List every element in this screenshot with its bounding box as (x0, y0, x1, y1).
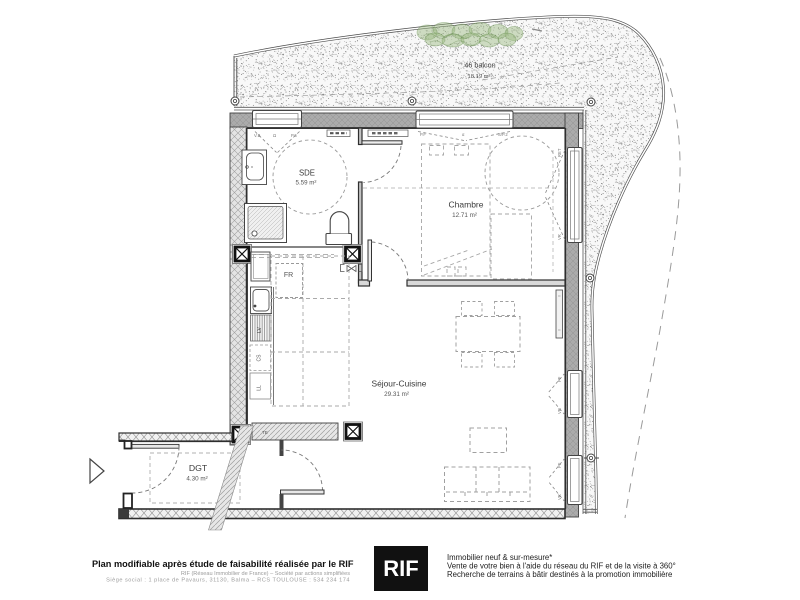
svg-text:46 balcon: 46 balcon (464, 61, 495, 70)
svg-text:4.30 m²: 4.30 m² (186, 476, 207, 483)
svg-text:Séjour-Cuisine: Séjour-Cuisine (372, 379, 427, 389)
svg-text:PF: PF (557, 376, 562, 382)
svg-text:P.6: P.6 (291, 133, 297, 138)
svg-text:18.19 m²: 18.19 m² (468, 74, 491, 80)
svg-text:5.59 m²: 5.59 m² (296, 180, 317, 187)
svg-text:TE: TE (262, 430, 268, 435)
svg-text:PF: PF (557, 462, 562, 468)
svg-text:Chambre: Chambre (449, 200, 484, 210)
svg-text:CS: CS (257, 354, 263, 362)
svg-text:V.B: V.B (254, 133, 261, 138)
svg-text:Plan modifiable après étude de: Plan modifiable après étude de faisabili… (92, 559, 354, 569)
svg-text:SDE: SDE (299, 169, 315, 178)
svg-text:Recherche de terrains à bâtir: Recherche de terrains à bâtir destinés à… (447, 570, 672, 579)
svg-text:DGT: DGT (189, 463, 208, 473)
svg-text:Siège social : 1 place de Pava: Siège social : 1 place de Pavaurs, 31130… (106, 578, 350, 584)
svg-text:VR: VR (557, 494, 562, 500)
svg-text:RIF (Réseau Immobilier de Fran: RIF (Réseau Immobilier de France) – Soci… (181, 571, 350, 577)
svg-text:12.71 m²: 12.71 m² (452, 212, 477, 219)
svg-text:RIF: RIF (383, 556, 418, 581)
svg-text:VR: VR (557, 234, 562, 240)
svg-text:LL: LL (257, 385, 263, 391)
svg-text:Ω: Ω (273, 133, 276, 138)
svg-text:29.31 m²: 29.31 m² (384, 391, 409, 398)
svg-text:α: α (462, 132, 465, 137)
svg-text:RET: RET (557, 148, 562, 157)
svg-text:LV: LV (257, 326, 263, 332)
svg-text:S/P.2: S/P.2 (498, 132, 508, 137)
svg-text:P.F: P.F (420, 132, 426, 137)
svg-text:VR: VR (557, 408, 562, 414)
svg-text:FR: FR (284, 272, 293, 279)
